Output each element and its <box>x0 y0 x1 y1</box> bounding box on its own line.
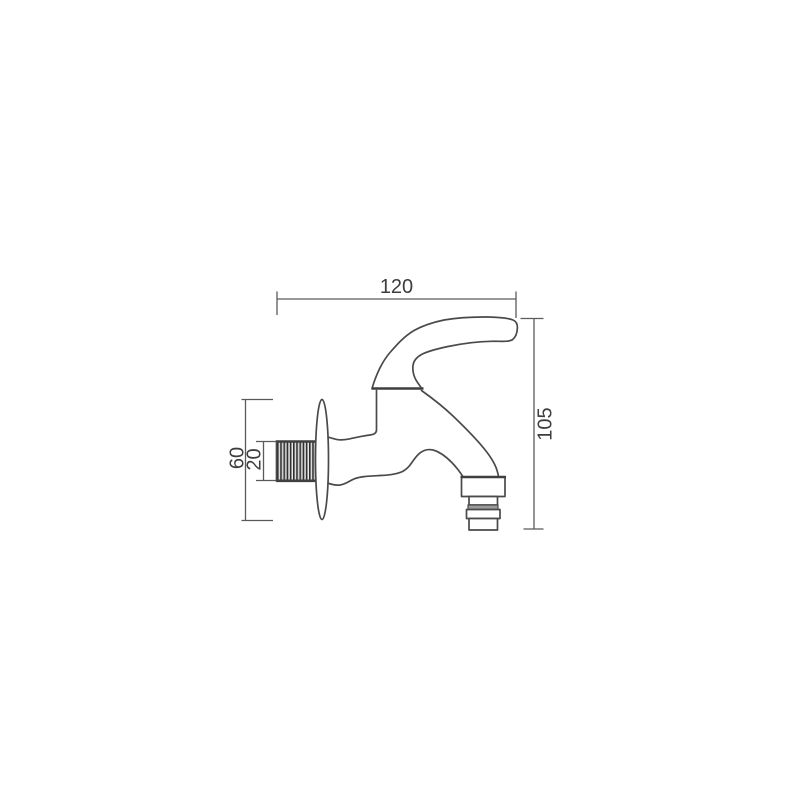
dimension-overall-length: 120 <box>277 276 516 318</box>
outlet-step <box>469 497 498 506</box>
faucet-body-top-contour <box>328 391 377 440</box>
outlet-block <box>462 477 506 497</box>
handle-outline <box>372 317 517 389</box>
outlet-nipple-end <box>469 519 498 531</box>
faucet-threaded-inlet <box>277 441 319 481</box>
faucet-outlet-connector <box>461 477 507 530</box>
thread-hatch-area <box>277 442 318 482</box>
dimension-overall-height: 105 <box>521 319 557 530</box>
dim-label-overall-height: 105 <box>535 407 557 440</box>
faucet-spout-inner-contour <box>328 450 463 485</box>
faucet-handle <box>372 317 518 389</box>
faucet-spout-outer-contour <box>422 391 499 477</box>
dim-label-thread-diameter: 20 <box>244 448 266 470</box>
dim-label-overall-length: 120 <box>380 276 413 298</box>
outlet-lip-ring <box>467 510 501 519</box>
faucet-wall-flange <box>316 400 329 520</box>
faucet-dimension-drawing: 120 105 60 20 <box>0 0 800 800</box>
technical-drawing-canvas: 120 105 60 20 <box>0 0 800 800</box>
